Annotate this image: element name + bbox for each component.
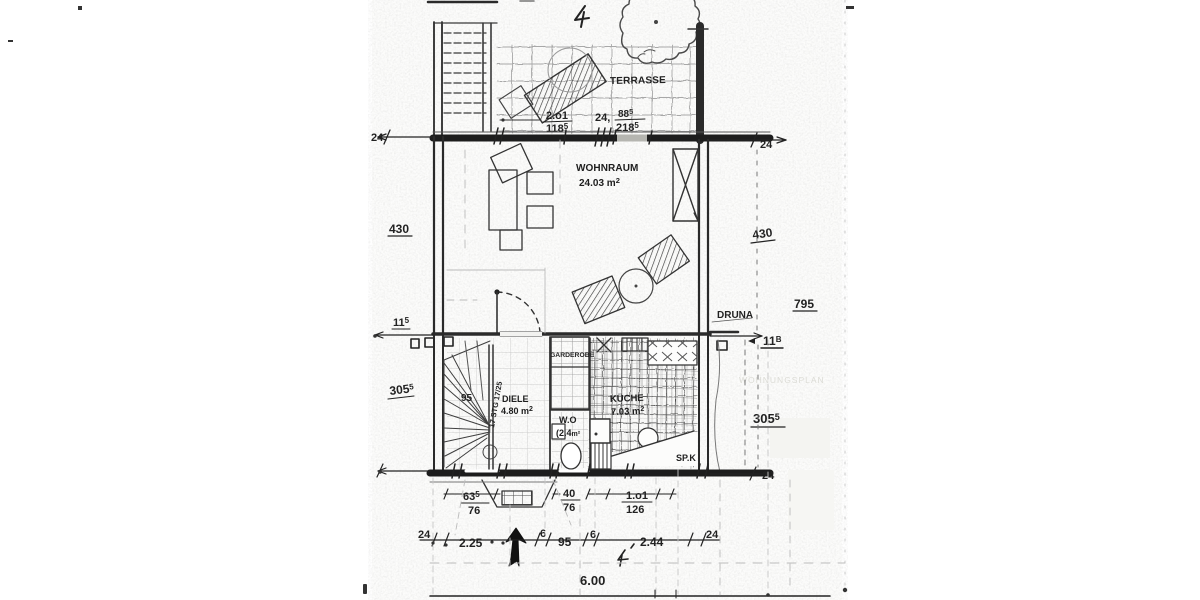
svg-text:95: 95 — [558, 535, 572, 549]
svg-text:W.O: W.O — [559, 415, 577, 425]
svg-text:24: 24 — [371, 132, 384, 144]
svg-text:SP.K: SP.K — [676, 453, 696, 463]
svg-text:2.o1: 2.o1 — [546, 110, 568, 122]
svg-text:4.80 m2: 4.80 m2 — [501, 406, 533, 416]
svg-text:76: 76 — [563, 502, 575, 514]
svg-text:126: 126 — [626, 504, 644, 516]
svg-text:WOHNRAUM: WOHNRAUM — [576, 163, 638, 174]
svg-text:KÜCHE: KÜCHE — [610, 393, 644, 405]
svg-text:795: 795 — [794, 297, 814, 311]
svg-text:40: 40 — [563, 488, 575, 500]
svg-text:24: 24 — [706, 529, 719, 541]
svg-text:2.44: 2.44 — [640, 535, 664, 549]
svg-text:1.o1: 1.o1 — [626, 490, 648, 502]
svg-text:TERRASSE: TERRASSE — [610, 75, 666, 87]
svg-text:24.03 m2: 24.03 m2 — [579, 176, 620, 189]
svg-text:76: 76 — [468, 505, 480, 517]
svg-text:WOHNUNGSPLAN: WOHNUNGSPLAN — [739, 375, 825, 385]
svg-text:DIELE: DIELE — [502, 394, 529, 404]
svg-text:95: 95 — [461, 393, 473, 404]
svg-text:24: 24 — [418, 529, 431, 541]
svg-text:24: 24 — [760, 139, 773, 151]
svg-text:430: 430 — [751, 225, 773, 242]
svg-text:2.25: 2.25 — [459, 536, 483, 550]
svg-text:GARDEROBE: GARDEROBE — [550, 352, 595, 359]
svg-text:6.00: 6.00 — [580, 573, 605, 588]
svg-text:24,: 24, — [595, 112, 610, 124]
svg-text:7.03 m2: 7.03 m2 — [611, 406, 645, 418]
svg-text:24: 24 — [762, 470, 775, 482]
svg-text:430: 430 — [389, 222, 409, 236]
